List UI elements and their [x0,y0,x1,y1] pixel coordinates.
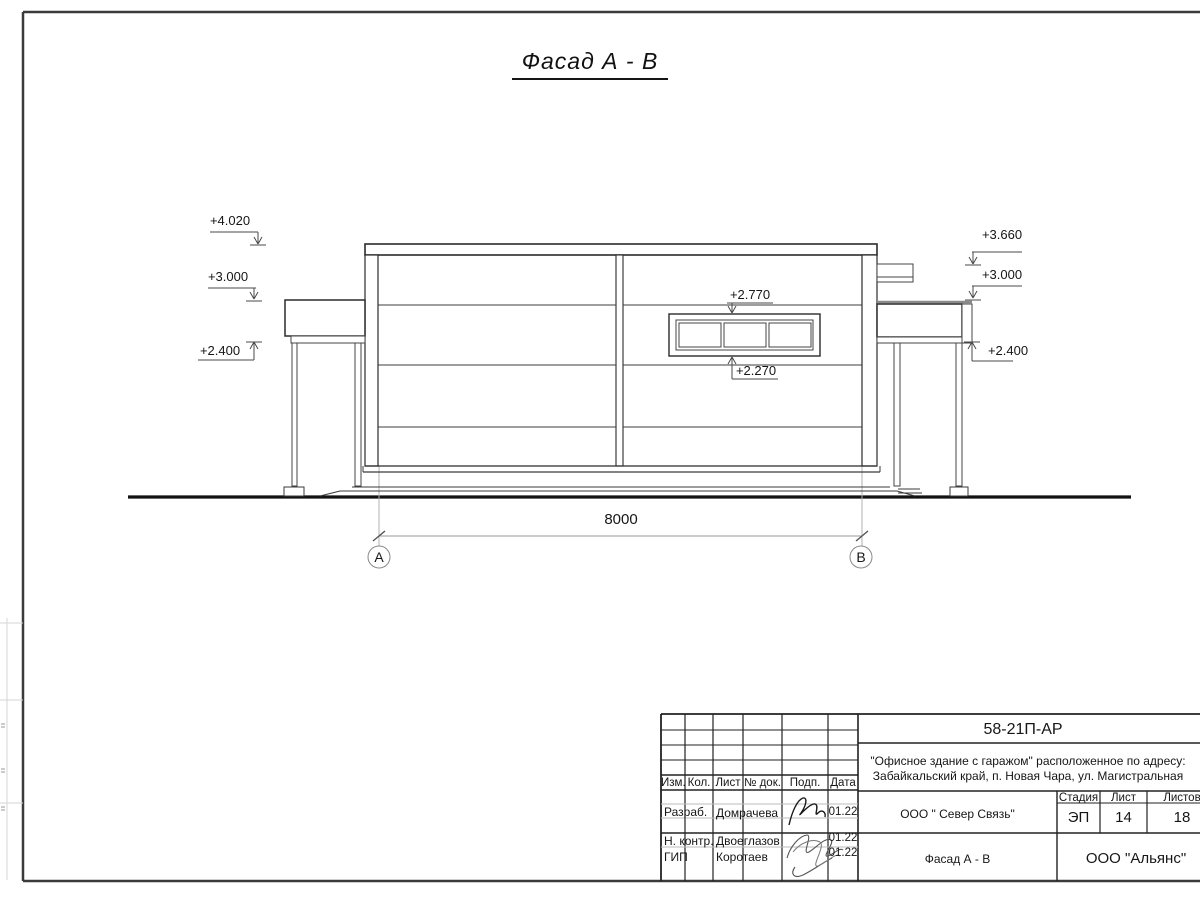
page-title-text: Фасад А - В [512,48,669,80]
company-name: ООО "Альянс" [1057,851,1200,867]
sig-row-date: 01.22 [828,831,858,845]
elevation-label-left-1: +4.020 [204,214,256,228]
project-name-line2: Забайкальский край, п. Новая Чара, ул. М… [862,769,1194,783]
sheet-label: Лист [1100,791,1147,805]
axis-bubble-a: А [368,550,390,565]
stamp-drawing-title: Фасад А - В [859,852,1056,866]
sig-row-date: 01.22 [828,805,858,819]
sig-row-role: Разраб. [664,805,707,819]
sig-row-name: Двоеглазов [716,834,780,848]
elevation-label-left-3: +2.400 [194,344,246,358]
doc-number: 58-21П-АР [860,721,1186,739]
elevation-label-right-1: +3.660 [976,228,1028,242]
col-header-izm: Изм. [661,776,685,790]
dimension-label: 8000 [591,512,651,528]
drawing-sheet: Фасад А - В +4.020 +3.000 +2.400 +3.660 … [0,0,1200,900]
elevation-label-right-2: +3.000 [976,268,1028,282]
col-header-list: Лист [713,776,743,790]
window-elevation-bottom: +2.270 [730,364,782,378]
page-title: Фасад А - В [440,48,740,80]
sheet-value: 14 [1100,810,1147,826]
col-header-kol: Кол. [685,776,713,790]
sig-row-name: Коротаев [716,850,768,864]
elevation-label-right-3: +2.400 [982,344,1034,358]
col-header-doc: № док. [743,776,782,790]
stage-value: ЭП [1057,810,1100,826]
stage-label: Стадия [1057,791,1100,805]
sig-row-role: Н. контр. [664,834,714,848]
col-header-podp: Подп. [782,776,828,790]
sig-row-date: 01.22 [828,846,858,860]
col-header-data: Дата [828,776,858,790]
sheets-value: 18 [1147,810,1200,826]
sig-row-role: ГИП [664,850,688,864]
org-name: ООО " Север Связь" [859,807,1056,821]
project-name-line1: "Офисное здание с гаражом" расположенное… [862,754,1194,768]
elevation-label-left-2: +3.000 [202,270,254,284]
window-elevation-top: +2.770 [724,288,776,302]
sheets-label: Листов [1147,791,1200,805]
axis-bubble-b: В [850,550,872,565]
sig-row-name: Домрачева [716,806,778,820]
